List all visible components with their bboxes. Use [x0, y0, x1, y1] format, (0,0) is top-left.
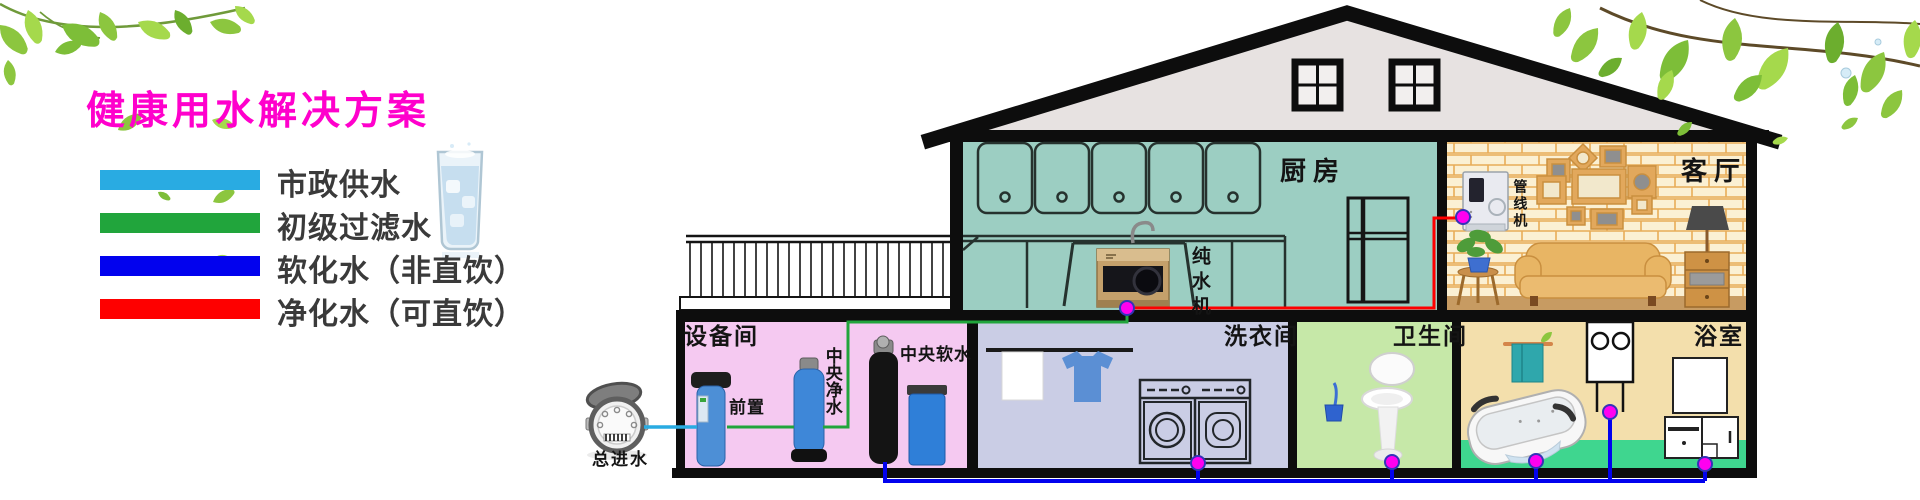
device-label-main-inlet: 总进水 [592, 451, 649, 470]
prefilter-unit [691, 372, 731, 466]
device-label-central-softener: 中央软水 [900, 346, 972, 365]
joint-water-heater [1603, 405, 1617, 419]
central-softener-tank [869, 336, 898, 464]
sofa [1515, 243, 1671, 306]
attic-window [1392, 62, 1437, 108]
device-label-prefilter: 前置 [729, 399, 765, 418]
bath-mirror [1673, 358, 1727, 413]
main-water-meter [585, 379, 648, 460]
room-label-equipment: 设备间 [684, 324, 759, 349]
water-glass [438, 142, 482, 258]
joint-pipeline-machine [1456, 210, 1470, 224]
joint-washing-machine [1191, 456, 1205, 470]
pure-water-machine [1097, 249, 1169, 307]
device-label-central-purifier: 中央净水 [822, 347, 841, 415]
roof [930, 13, 1773, 140]
device-label-pipeline-machine: 管线机 [1512, 179, 1527, 230]
legend-swatch-filtered [100, 213, 260, 233]
room-label-kitchen: 厨房 [1280, 157, 1346, 186]
room-label-living: 客厅 [1681, 157, 1747, 186]
water-droplet [1875, 39, 1881, 45]
banner: 健康用水解决方案 市政供水 初级过滤水 软化水（非直饮） 净化水（可直饮） 厨房… [0, 0, 1920, 500]
legend-label-softened: 软化水（非直饮） [277, 246, 525, 290]
sink-cabinet [1665, 417, 1738, 458]
joint-bathtub [1529, 454, 1543, 468]
room-label-bath: 浴室 [1694, 324, 1744, 349]
legend-swatch-purified [100, 299, 260, 319]
device-label-pure-water-machine: 纯水机 [1188, 246, 1209, 321]
joint-toilet [1385, 455, 1399, 469]
pipeline-machine [1463, 172, 1508, 231]
legend-label-purified: 净化水（可直饮） [277, 289, 525, 333]
legend-label-filtered: 初级过滤水 [277, 203, 432, 247]
leaves-top-left [0, 1, 258, 86]
room-label-laundry: 洗衣间 [1224, 324, 1299, 349]
page-title: 健康用水解决方案 [86, 80, 430, 136]
joint-pure-water-machine [1120, 301, 1134, 315]
room-label-toilet: 卫生间 [1393, 324, 1468, 349]
joint-sink [1698, 457, 1712, 471]
brine-tank [907, 385, 947, 465]
legend-swatch-municipal [100, 170, 260, 190]
floor-lamp [1685, 206, 1729, 307]
water-droplet [1841, 68, 1851, 78]
attic-window [1295, 62, 1340, 108]
legend-swatch-softened [100, 256, 260, 276]
balcony-railing [680, 236, 953, 310]
legend-label-municipal: 市政供水 [277, 160, 401, 204]
